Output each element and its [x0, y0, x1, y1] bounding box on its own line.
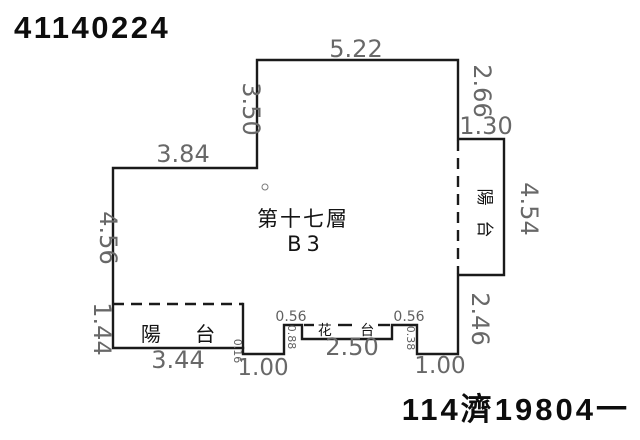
dim-left-ledge-width: 0.56: [275, 309, 306, 325]
dim-right-ledge-width: 0.56: [393, 309, 424, 325]
left-balcony-label: 陽 台: [141, 322, 229, 346]
dim-left-height: 4.56: [94, 211, 122, 264]
dim-left-ledge-depth: 0.88: [285, 325, 298, 350]
dim-left-balcony-width: 3.44: [151, 346, 204, 374]
right-balcony-label-char-bottom: 台: [474, 221, 494, 238]
dim-upper-right-height: 2.66: [468, 64, 496, 117]
dim-upper-left-height: 3.50: [237, 82, 265, 135]
dim-bottom-left-offset: 1.00: [237, 355, 288, 381]
floor-plan-page: 41140224 114濟19804一 5.22 2.66 1.30 4.54 …: [0, 0, 640, 440]
dim-right-ledge-depth: 0.38: [404, 326, 417, 351]
dim-bottom-right-offset: 1.00: [414, 353, 465, 379]
flower-bed-label: 花 台: [318, 323, 386, 339]
case-number: 114濟19804一: [402, 392, 630, 427]
dim-left-balcony-height: 1.44: [88, 302, 116, 355]
document-number: 41140224: [14, 10, 170, 45]
floor-label: 第十七層: [257, 207, 349, 231]
dim-top-width: 5.22: [329, 35, 382, 63]
dim-upper-left-width: 3.84: [156, 140, 209, 168]
dim-lower-right-height: 2.46: [466, 292, 494, 345]
right-balcony-label-char-top: 陽: [474, 189, 494, 206]
column-marker-circle: [262, 184, 268, 190]
unit-label: B3: [287, 232, 325, 256]
floor-plan-canvas: 41140224 114濟19804一 5.22 2.66 1.30 4.54 …: [0, 0, 640, 440]
dim-right-balcony-height: 4.54: [515, 182, 543, 235]
dim-right-balcony-width: 1.30: [459, 112, 512, 140]
